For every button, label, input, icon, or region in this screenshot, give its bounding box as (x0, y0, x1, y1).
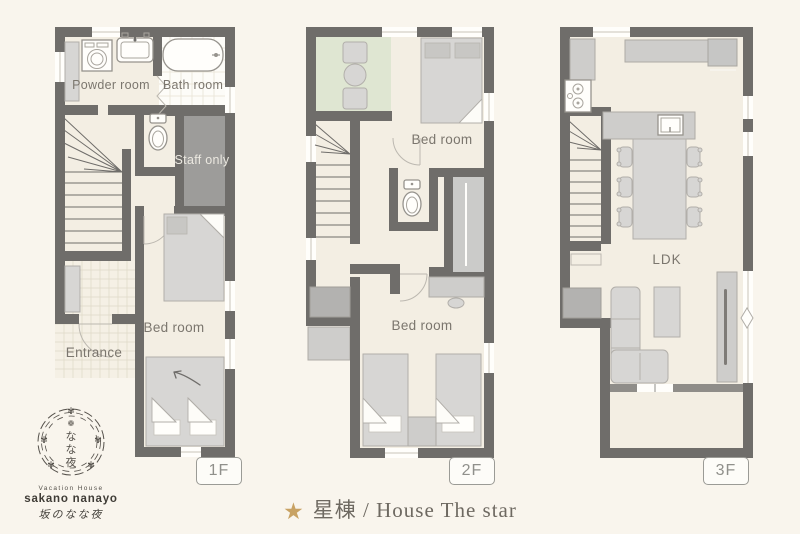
emblem-char-1: な (66, 430, 77, 443)
stove-icon (565, 80, 591, 112)
tall-cabinet (570, 39, 595, 80)
room-label-staff: Staff only (175, 153, 230, 167)
logo-line-romaji: sakano nanayo (14, 493, 128, 505)
petal-icon: ✾ (40, 435, 48, 445)
floor-cushion (343, 42, 367, 63)
toilet-icon-2f (403, 180, 421, 216)
round-table (344, 64, 366, 86)
room-label-bedroom-2f-upper: Bed room (412, 132, 473, 147)
closet-dark-3f (563, 288, 601, 318)
tatami-furniture (343, 42, 367, 109)
bed-double-1f (146, 357, 224, 446)
bed-double-2f (421, 38, 482, 123)
closet-2f (453, 177, 484, 272)
logo-emblem: ✾ ✾ ✾ ✾ ✾ ❁ な な 夜 (35, 406, 107, 478)
washing-machine-icon (82, 40, 112, 71)
balcony-3f (610, 392, 743, 448)
petal-icon: ✾ (87, 460, 95, 470)
room-label-powder: Powder room (72, 78, 150, 92)
room-label-entrance: Entrance (66, 345, 122, 360)
dining-set (617, 139, 702, 239)
balcony-2f (308, 327, 350, 360)
bed-twin-left-2f (363, 354, 408, 446)
logo-line-en: Vacation House (14, 485, 128, 492)
room-label-bedroom-2f-lower: Bed room (392, 318, 453, 333)
floorplan-sheet: Powder room Bath room Staff only Bed roo… (0, 0, 800, 534)
emblem-char-3: 夜 (66, 455, 77, 469)
petal-icon: ✾ (94, 435, 102, 445)
kitchen-island (603, 112, 695, 139)
house-title-text: 星棟 / House The star (313, 498, 517, 522)
floor-tag-2f: 2F (449, 457, 495, 485)
petal-icon: ✾ (67, 406, 75, 416)
balcony-wall-3f (610, 384, 743, 392)
floor-cushion (343, 88, 367, 109)
flower-icon: ❁ (68, 419, 75, 428)
bed-single-1f (164, 214, 224, 301)
fridge-icon (708, 39, 737, 70)
petal-icon: ✾ (47, 460, 55, 470)
star-icon: ★ (283, 498, 304, 524)
floorplan-3f: LDK (559, 26, 754, 459)
dining-table (633, 139, 686, 239)
stool (448, 298, 464, 308)
room-label-bedroom-1f: Bed room (144, 320, 205, 335)
floorplan-2f: Bed room Bed room (305, 26, 495, 459)
room-label-bath: Bath room (163, 78, 223, 92)
exterior-cut-3f (559, 328, 600, 459)
room-label-ldk: LDK (652, 252, 681, 267)
toilet-icon-1f (149, 114, 167, 150)
floorplan-1f: Powder room Bath room Staff only Bed roo… (54, 26, 236, 458)
floor-tag-1f: 1F (196, 457, 242, 485)
floor-tag-3f: 3F (703, 457, 749, 485)
emblem-char-2: な (66, 443, 77, 456)
nightstand (408, 417, 436, 446)
logo-line-jp: 坂のなな夜 (14, 506, 128, 522)
coffee-table (654, 287, 680, 337)
brand-logo: ✾ ✾ ✾ ✾ ✾ ❁ な な 夜 Vacation House sakano … (14, 406, 128, 522)
closet-dark-2f (310, 287, 350, 317)
shoe-cabinet (65, 266, 80, 312)
bed-twin-right-2f (436, 354, 481, 446)
linen-shelf (65, 42, 79, 101)
tv-icon (724, 289, 727, 365)
bathtub-icon (163, 39, 223, 71)
